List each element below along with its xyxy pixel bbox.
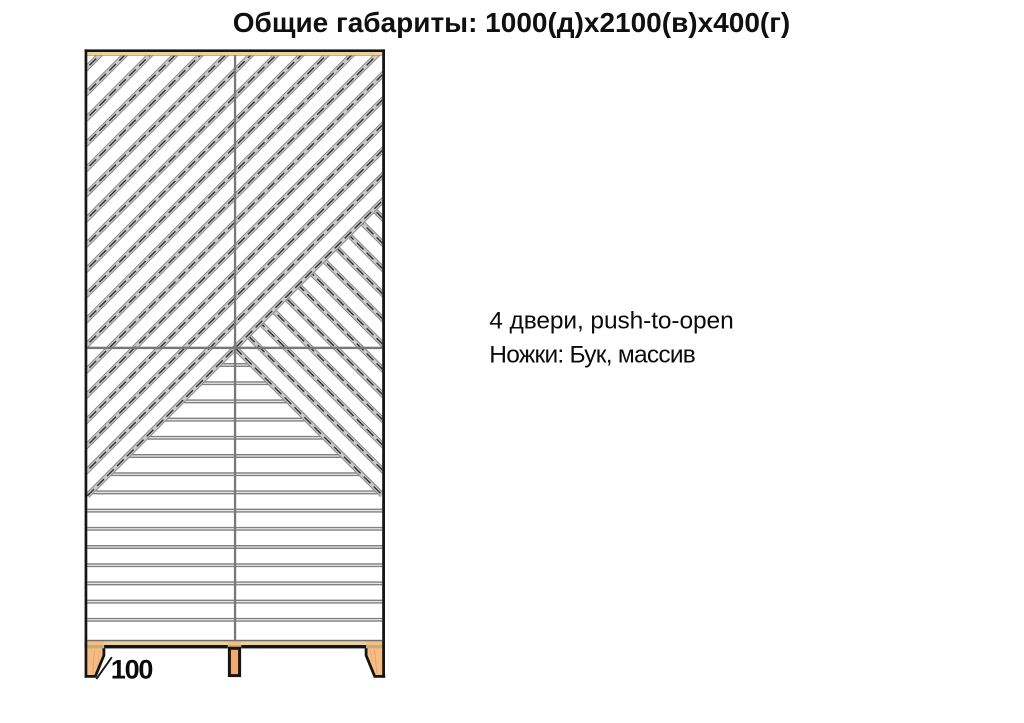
svg-text:4 двери, push-to-open: 4 двери, push-to-open [489,308,733,335]
svg-text:Ножки: Бук, массив: Ножки: Бук, массив [489,342,695,369]
svg-text:100: 100 [111,654,153,684]
svg-text:Общие габариты: 1000(д)х2100(в: Общие габариты: 1000(д)х2100(в)х400(г) [233,7,790,38]
